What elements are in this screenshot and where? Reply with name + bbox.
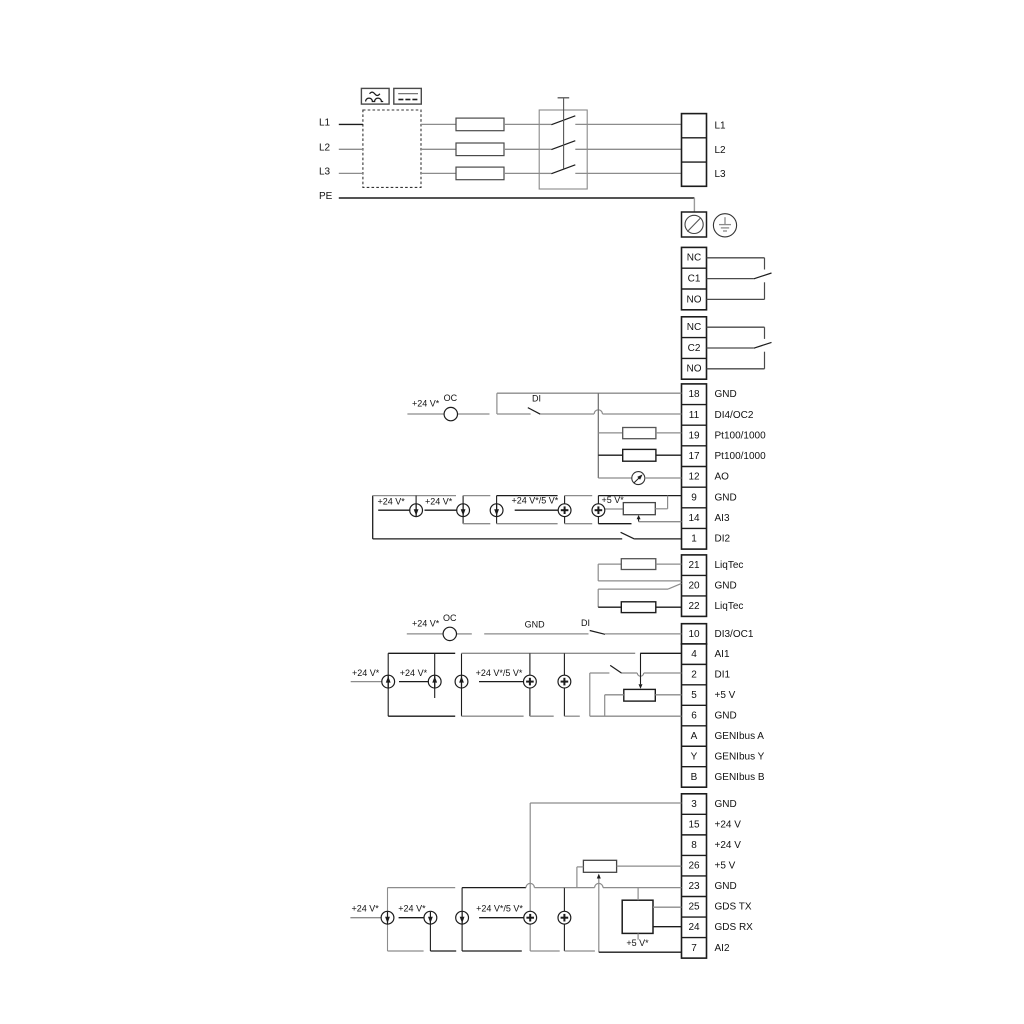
- svg-text:7: 7: [691, 943, 697, 954]
- svg-text:OC: OC: [443, 613, 457, 623]
- svg-text:+24 V*: +24 V*: [378, 497, 406, 507]
- svg-text:DI: DI: [532, 394, 541, 404]
- svg-text:+24 V*: +24 V*: [352, 903, 380, 913]
- svg-text:+24 V: +24 V: [715, 840, 742, 851]
- svg-text:C1: C1: [688, 274, 701, 285]
- svg-text:23: 23: [688, 881, 700, 892]
- svg-text:12: 12: [688, 472, 700, 483]
- svg-text:+24 V*/5 V*: +24 V*/5 V*: [512, 495, 559, 505]
- svg-text:18: 18: [688, 389, 700, 400]
- svg-text:GND: GND: [715, 492, 737, 503]
- svg-text:L3: L3: [715, 169, 727, 180]
- svg-text:6: 6: [691, 710, 697, 721]
- svg-text:24: 24: [688, 922, 700, 933]
- svg-text:+5 V: +5 V: [715, 861, 736, 872]
- svg-text:4: 4: [691, 649, 697, 660]
- svg-text:+24 V: +24 V: [715, 820, 742, 831]
- svg-text:L2: L2: [715, 145, 727, 156]
- svg-text:26: 26: [688, 861, 700, 872]
- svg-text:14: 14: [688, 513, 700, 524]
- svg-text:+5 V: +5 V: [715, 690, 736, 701]
- svg-text:21: 21: [688, 560, 700, 571]
- svg-text:+24 V*: +24 V*: [412, 619, 440, 629]
- svg-text:GND: GND: [715, 881, 737, 892]
- svg-text:GND: GND: [715, 581, 737, 592]
- svg-text:2: 2: [691, 670, 697, 681]
- svg-text:19: 19: [688, 430, 700, 441]
- svg-text:22: 22: [688, 601, 700, 612]
- svg-text:+24 V*: +24 V*: [412, 399, 440, 409]
- svg-text:OC: OC: [444, 393, 458, 403]
- svg-text:LiqTec: LiqTec: [715, 560, 744, 571]
- svg-text:+5 V*: +5 V*: [602, 495, 625, 505]
- svg-text:GENIbus A: GENIbus A: [715, 731, 765, 742]
- svg-text:GENIbus Y: GENIbus Y: [715, 751, 765, 762]
- svg-text:DI: DI: [581, 618, 590, 628]
- svg-text:11: 11: [689, 410, 700, 421]
- svg-text:+24 V*/5 V*: +24 V*/5 V*: [476, 668, 523, 678]
- svg-text:GDS RX: GDS RX: [715, 922, 754, 933]
- svg-text:+24 V*: +24 V*: [398, 903, 426, 913]
- svg-text:GND: GND: [715, 799, 737, 810]
- svg-text:+24 V*/5 V*: +24 V*/5 V*: [476, 903, 523, 913]
- svg-text:L2: L2: [319, 142, 331, 153]
- svg-text:GND: GND: [715, 389, 737, 400]
- svg-text:Y: Y: [691, 751, 698, 762]
- svg-text:AI1: AI1: [715, 649, 730, 660]
- svg-text:Pt100/1000: Pt100/1000: [715, 430, 767, 441]
- svg-text:AO: AO: [715, 472, 730, 483]
- svg-text:L1: L1: [715, 121, 727, 132]
- svg-text:Pt100/1000: Pt100/1000: [715, 451, 767, 462]
- svg-text:AI3: AI3: [715, 513, 730, 524]
- svg-text:B: B: [691, 772, 698, 783]
- svg-text:GND: GND: [715, 710, 737, 721]
- svg-text:DI4/OC2: DI4/OC2: [715, 410, 754, 421]
- svg-text:15: 15: [688, 820, 700, 831]
- svg-text:20: 20: [688, 581, 700, 592]
- svg-text:L1: L1: [319, 118, 331, 129]
- svg-text:8: 8: [691, 840, 697, 851]
- svg-text:DI1: DI1: [715, 670, 731, 681]
- svg-text:+24 V*: +24 V*: [400, 668, 428, 678]
- svg-text:NO: NO: [687, 294, 702, 305]
- svg-text:17: 17: [688, 451, 700, 462]
- svg-text:9: 9: [691, 492, 697, 503]
- svg-text:DI2: DI2: [715, 534, 731, 545]
- svg-text:NC: NC: [687, 253, 701, 264]
- svg-text:+5 V*: +5 V*: [626, 938, 649, 948]
- svg-text:10: 10: [688, 629, 700, 640]
- svg-text:A: A: [691, 731, 698, 742]
- svg-text:C2: C2: [688, 343, 701, 354]
- svg-text:PE: PE: [319, 191, 333, 202]
- svg-text:L3: L3: [319, 167, 331, 178]
- svg-text:DI3/OC1: DI3/OC1: [715, 629, 754, 640]
- svg-text:GDS TX: GDS TX: [715, 902, 752, 913]
- svg-text:+24 V*: +24 V*: [425, 497, 453, 507]
- svg-text:NO: NO: [687, 364, 702, 375]
- svg-text:3: 3: [691, 799, 697, 810]
- svg-text:LiqTec: LiqTec: [715, 601, 744, 612]
- svg-text:+24 V*: +24 V*: [352, 668, 380, 678]
- svg-text:AI2: AI2: [715, 943, 730, 954]
- svg-text:5: 5: [691, 690, 697, 701]
- svg-text:25: 25: [688, 902, 700, 913]
- svg-text:GENIbus B: GENIbus B: [715, 772, 765, 783]
- svg-text:NC: NC: [687, 322, 701, 333]
- svg-text:GND: GND: [525, 619, 546, 629]
- svg-text:1: 1: [691, 534, 697, 545]
